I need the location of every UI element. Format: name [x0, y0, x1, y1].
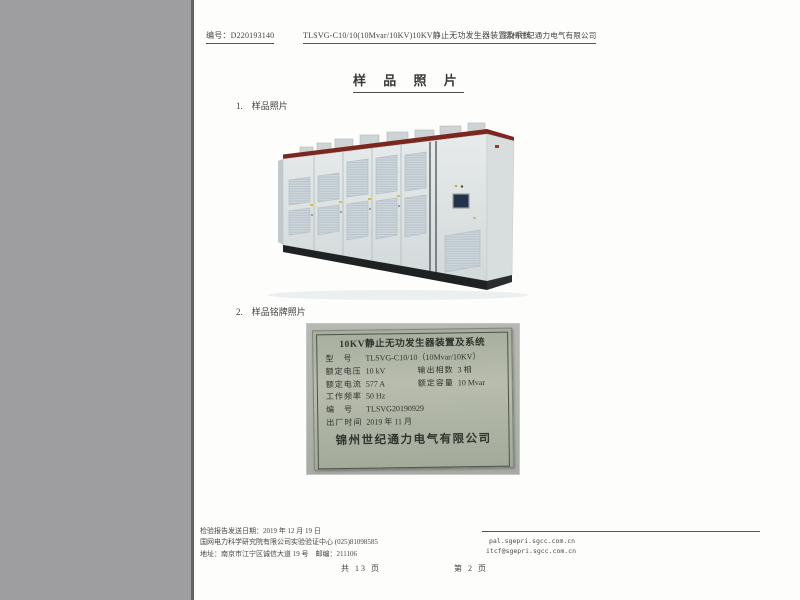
document-title: TLSVG-C10/10(10Mvar/10KV)10KV静止无功发生器装置及系… [303, 30, 531, 44]
nameplate-company: 锦州世纪通力电气有限公司 [326, 430, 500, 448]
footer-email: itcf@sgepri.sgcc.com.cn [486, 546, 576, 556]
nameplate-photo: 10KV静止无功发生器装置及系统 型 号 TLSVG-C10/10（10Mvar… [306, 323, 520, 475]
section-2-label: 2. 样品铭牌照片 [236, 305, 306, 318]
field-value: 2019 年 11 月 [366, 415, 500, 430]
sample-photo [240, 114, 562, 302]
field-label: 额定电流 [326, 378, 366, 391]
footer-rule [482, 531, 760, 532]
field-value: 10 kV [366, 365, 418, 379]
footer-address: 地址：南京市江宁区诚信大道 19 号 邮编：211106 [200, 549, 357, 559]
scanner-margin [0, 0, 194, 600]
hmi-screen [453, 194, 469, 208]
page-count-total: 共 13 页 [341, 563, 381, 574]
field-label: 工作频率 [326, 391, 366, 404]
page-count-current: 第 2 页 [454, 563, 488, 574]
footer-send-date: 检验报告发送日期：2019 年 12 月 19 日 [200, 526, 321, 536]
nameplate-row-date: 出厂时间 2019 年 11 月 [326, 415, 500, 430]
field-value: 10 Mvar [458, 376, 500, 389]
footer-organization: 国网电力科学研究院有限公司实验验证中心 (025)81098585 [200, 537, 378, 547]
field-label: 型 号 [325, 353, 365, 366]
field-label: 编 号 [326, 404, 366, 417]
nameplate: 10KV静止无功发生器装置及系统 型 号 TLSVG-C10/10（10Mvar… [312, 328, 514, 471]
cabinet-photo-art [240, 114, 562, 302]
field-value: 3 相 [458, 364, 500, 377]
scanned-report-page: 编号：D220193140 TLSVG-C10/10(10Mvar/10KV)1… [0, 0, 800, 600]
field-value: 577 A [366, 378, 418, 392]
footer-website: pal.sgepri.sgcc.com.cn [489, 536, 575, 546]
report-number: 编号：D220193140 [206, 30, 274, 44]
section-1-label: 1. 样品照片 [236, 99, 288, 112]
field-label: 输出相数 [418, 364, 458, 377]
company-name: 锦州世纪通力电气有限公司 [504, 30, 596, 44]
nameplate-frame: 10KV静止无功发生器装置及系统 型 号 TLSVG-C10/10（10Mvar… [316, 332, 510, 470]
field-value: 50 Hz [366, 390, 418, 404]
nameplate-row-current: 额定电流 577 A 额定容量 10 Mvar [326, 376, 500, 391]
field-label: 出厂时间 [326, 417, 366, 430]
field-label: 额定电压 [326, 365, 366, 378]
page-title: 样 品 照 片 [353, 70, 464, 93]
field-label: 额定容量 [418, 377, 458, 390]
